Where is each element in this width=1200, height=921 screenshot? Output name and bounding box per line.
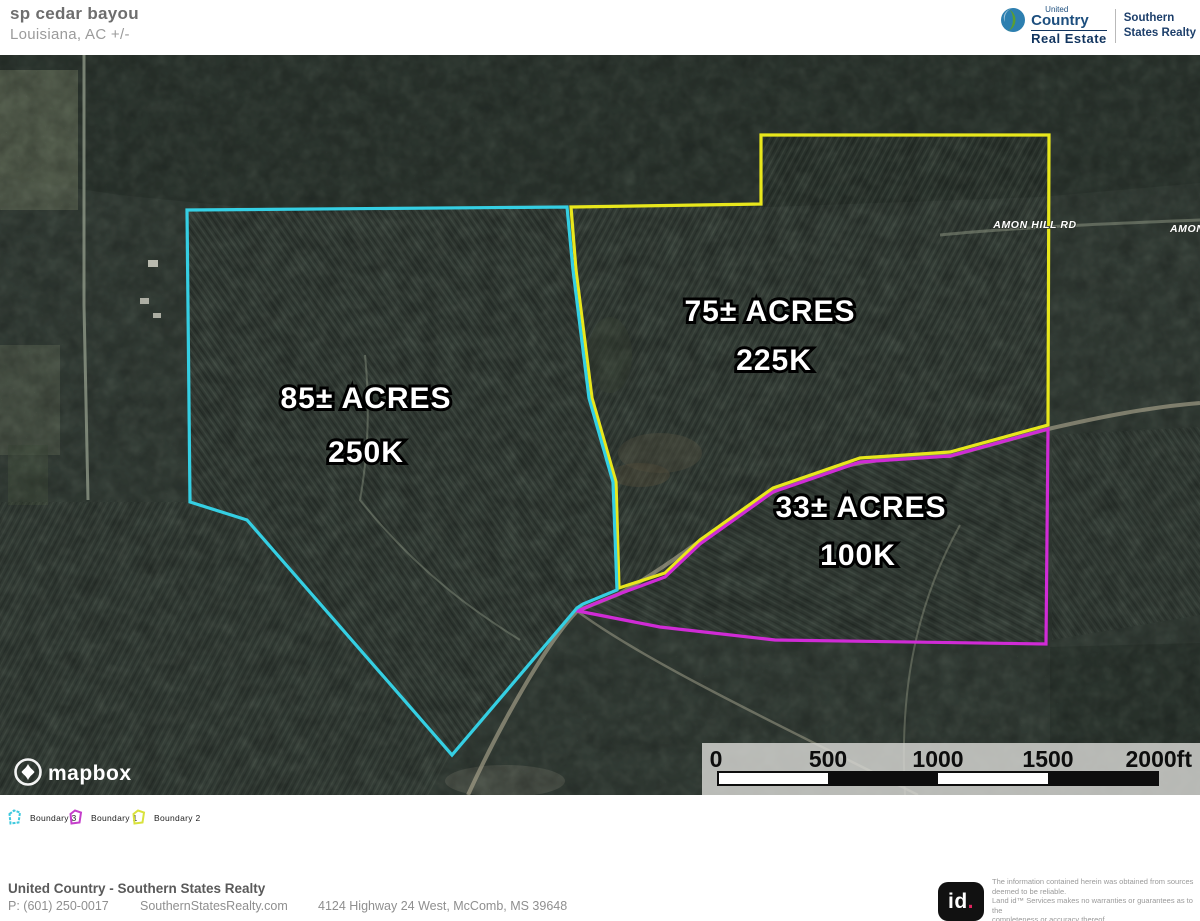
building [140,298,149,304]
footer-address: 4124 Highway 24 West, McComb, MS 39648 [318,899,567,913]
disclaimer-line: Land id™ Services makes no warranties or… [992,896,1197,915]
satellite-map[interactable]: 85± ACRES 250K 75± ACRES 225K 33± ACRES … [0,55,1200,795]
page: sp cedar bayou Louisiana, AC +/- United … [0,0,1200,921]
globe-icon [998,6,1028,36]
disclaimer-line: completeness or accuracy thereof. [992,915,1197,921]
label-33-acres: 33± ACRES [775,491,946,524]
scale-seg [828,772,938,785]
office-line2: States Realty [1124,26,1196,41]
scale-tick-0: 0 [710,746,723,772]
scale-tick-1500: 1500 [1022,746,1073,772]
boundary-3-swatch-icon [7,809,22,826]
page-title: sp cedar bayou [10,4,139,24]
boundary-2-swatch-icon [131,809,146,826]
office-name: Southern States Realty [1124,11,1196,41]
land-id-logo: id. [938,882,984,921]
office-line1: Southern [1124,11,1196,26]
legend-item-boundary-3: Boundary 3 [7,809,76,826]
footer-company: United Country - Southern States Realty [8,881,265,896]
label-75-price: 225K [736,344,812,377]
united-country-logo: United Country Real Estate [998,6,1107,45]
legend-item-boundary-2: Boundary 2 [131,809,200,826]
footer-website: SouthernStatesRealty.com [140,899,288,913]
land-id-disclaimer: The information contained herein was obt… [992,877,1197,921]
scale-seg [938,772,1048,785]
scale-tick-2000: 2000ft [1126,746,1193,772]
road-label-amon-hill-right: AMON HILL RD [1169,223,1200,235]
brand-block: United Country Real Estate Southern Stat… [998,6,1196,45]
disclaimer-line: deemed to be reliable. [992,887,1197,897]
land-id-text: id [948,890,968,914]
legend-item-boundary-1: Boundary 1 [68,809,137,826]
scale-tick-500: 500 [809,746,847,772]
scale-bar: 0 500 1000 1500 2000ft [702,743,1200,795]
road-label-amon-hill: AMON HILL RD [992,219,1076,231]
brand-country: Country [1031,13,1107,28]
scale-tick-1000: 1000 [912,746,963,772]
label-33-price: 100K [820,539,896,572]
label-85-price: 250K [328,436,404,469]
building [148,260,158,267]
brand-real-estate: Real Estate [1031,30,1107,45]
land-id-dot: . [968,890,974,914]
map-legend: Boundary 3 Boundary 1 Boundary 2 [0,795,1200,850]
footer: United Country - Southern States Realty … [0,850,1200,921]
building [153,313,161,318]
legend-label: Boundary 2 [154,813,200,823]
footer-phone: P: (601) 250-0017 [8,899,109,913]
boundary-1-swatch-icon [68,809,83,826]
page-subtitle: Louisiana, AC +/- [10,26,130,43]
scale-seg [1048,772,1158,785]
united-country-wordmark: United Country Real Estate [1031,6,1107,45]
mapbox-wordmark: mapbox [48,762,132,785]
label-75-acres: 75± ACRES [684,295,855,328]
brand-divider [1115,9,1116,43]
label-85-acres: 85± ACRES [280,382,451,415]
header: sp cedar bayou Louisiana, AC +/- United … [0,0,1200,55]
scale-seg [718,772,828,785]
disclaimer-line: The information contained herein was obt… [992,877,1197,887]
map-canvas[interactable]: 85± ACRES 250K 75± ACRES 225K 33± ACRES … [0,55,1200,795]
